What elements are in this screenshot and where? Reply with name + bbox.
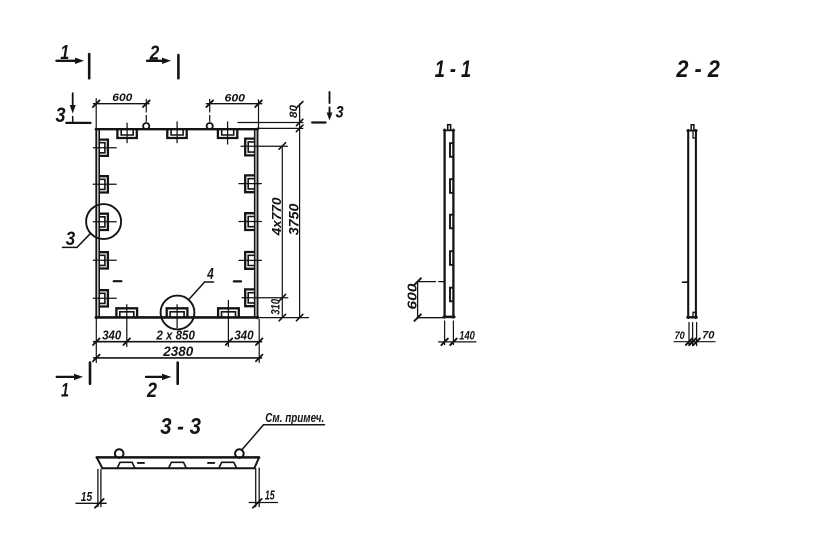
svg-text:2 - 2: 2 - 2 [675,56,720,83]
svg-text:1: 1 [61,380,69,401]
svg-text:4: 4 [207,266,214,283]
svg-text:310: 310 [271,298,283,314]
svg-text:15: 15 [265,488,276,502]
svg-text:3 - 3: 3 - 3 [160,413,201,439]
svg-text:2 x 850: 2 x 850 [156,327,196,342]
svg-text:600: 600 [225,92,246,104]
svg-text:2: 2 [146,379,157,402]
svg-text:70: 70 [702,329,715,341]
svg-text:2380: 2380 [162,343,193,359]
svg-text:140: 140 [459,329,475,343]
svg-text:600: 600 [112,92,133,104]
svg-text:70: 70 [675,330,686,342]
svg-text:См. примеч.: См. примеч. [265,410,324,425]
svg-text:340: 340 [102,327,122,342]
svg-text:340: 340 [234,327,254,342]
svg-text:3: 3 [336,103,344,122]
svg-text:15: 15 [81,490,93,504]
svg-text:1 - 1: 1 - 1 [435,56,471,83]
svg-text:3: 3 [56,104,66,127]
